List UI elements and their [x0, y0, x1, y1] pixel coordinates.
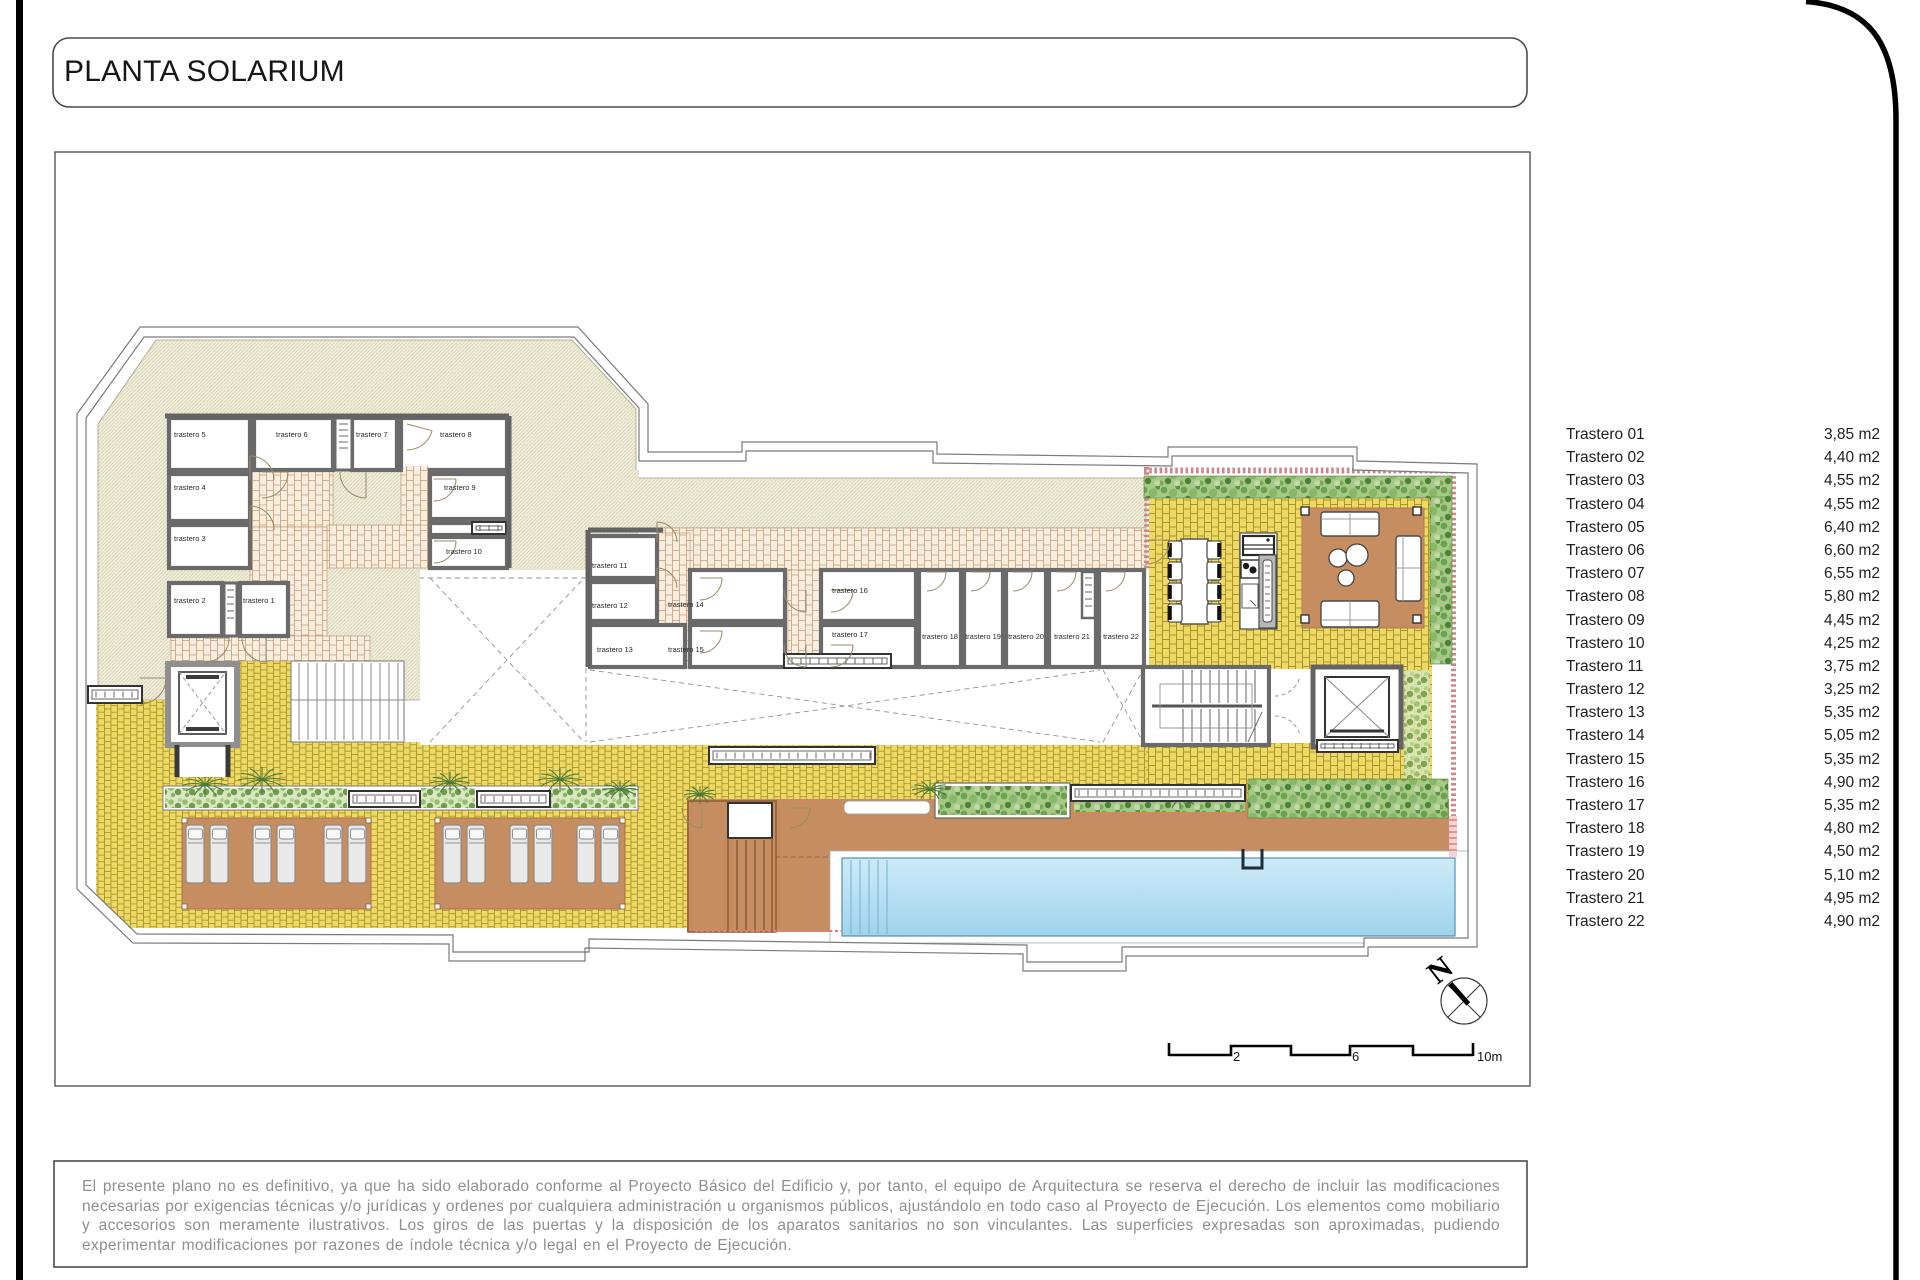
svg-text:trastero 10: trastero 10: [446, 547, 482, 556]
svg-text:trastero 6: trastero 6: [276, 430, 308, 439]
svg-text:trastero 8: trastero 8: [440, 430, 472, 439]
svg-text:trastero 20: trastero 20: [1008, 632, 1044, 641]
svg-text:trastero 19: trastero 19: [965, 632, 1001, 641]
svg-text:trastero 21: trastero 21: [1054, 632, 1090, 641]
svg-text:trastero 17: trastero 17: [832, 630, 868, 639]
svg-text:trastero 16: trastero 16: [832, 586, 868, 595]
svg-text:trastero 18: trastero 18: [922, 632, 958, 641]
svg-text:trastero 4: trastero 4: [174, 483, 206, 492]
svg-text:trastero 11: trastero 11: [592, 561, 627, 570]
svg-text:trastero 3: trastero 3: [174, 534, 206, 543]
svg-text:trastero 13: trastero 13: [597, 645, 633, 654]
svg-text:trastero 2: trastero 2: [174, 596, 206, 605]
svg-text:trastero 7: trastero 7: [356, 430, 388, 439]
svg-text:6: 6: [1352, 1049, 1359, 1064]
svg-text:trastero 14: trastero 14: [668, 600, 704, 609]
svg-text:trastero 1: trastero 1: [243, 596, 275, 605]
svg-text:trastero 9: trastero 9: [444, 483, 476, 492]
svg-text:10m: 10m: [1477, 1049, 1502, 1064]
svg-text:trastero 5: trastero 5: [174, 430, 206, 439]
svg-text:trastero 12: trastero 12: [592, 601, 628, 610]
svg-text:2: 2: [1233, 1049, 1240, 1064]
svg-text:trastero 22: trastero 22: [1103, 632, 1139, 641]
svg-text:trastero 15: trastero 15: [668, 645, 704, 654]
